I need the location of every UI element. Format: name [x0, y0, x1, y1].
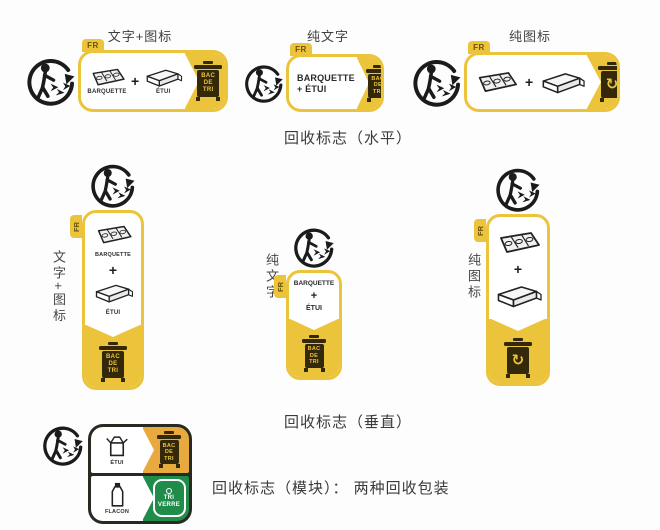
arrow-chevron — [142, 427, 154, 473]
arrow-chevron — [489, 318, 547, 331]
triman-logo-icon — [42, 424, 84, 466]
plus-etui-label: + ÉTUI — [297, 84, 326, 94]
barquette-label: BARQUETTE — [87, 89, 126, 95]
triman-logo-icon — [495, 166, 541, 212]
tray-barquette-icon — [87, 67, 127, 88]
barquette-label: BARQUETTE — [297, 73, 355, 83]
open-box-etui-icon — [105, 434, 129, 459]
bottle-flacon-icon — [108, 482, 127, 508]
label-module: ÉTUI BAC DE TRI — [42, 424, 192, 524]
caption-horizontal: 回收标志（水平） — [230, 127, 466, 148]
bac-de-tri-bin-icon: BAC DE TRI — [157, 431, 181, 468]
bac-de-tri-bin-icon: BAC DE TRI — [194, 61, 222, 101]
label-vertical-text-only: FR BARQUETTE + ÉTUI BAC DE TRI — [286, 226, 342, 380]
fr-tag: FR — [70, 215, 82, 238]
bac-de-tri-bin-icon: BAC DE TRI — [99, 342, 127, 382]
bac-de-tri-bin-icon: BAC DE TRI — [302, 335, 326, 372]
label-vertical-text-icon: FR BARQUETTE + ÉTUI BAC DE — [82, 162, 144, 390]
arrow-chevron — [84, 324, 142, 337]
etui-label: ÉTUI — [156, 89, 170, 95]
recycling-labels-diagram: 文字+图标 纯文字 纯图标 FR BARQUETTE + ÉTUI — [0, 0, 660, 530]
caption-vertical: 回收标志（垂直） — [230, 411, 466, 432]
fr-tag: FR — [274, 275, 286, 298]
label-horizontal-text-only: FR BARQUETTE + ÉTUI BAC DE TRI — [244, 54, 384, 112]
header-text-only: 纯文字 — [270, 26, 386, 45]
label-vertical-icon-only: FR + ↻ — [486, 166, 550, 386]
side-label-icon-only: 纯图标 — [464, 253, 483, 301]
recycle-bin-icon: ↻ — [504, 338, 532, 378]
plus-sign: + — [514, 262, 522, 276]
tray-barquette-icon — [494, 230, 542, 256]
triman-logo-icon — [90, 162, 136, 208]
side-label-text-icon: 文字+图标 — [49, 250, 68, 325]
bac-de-tri-bin-icon: BAC DE TRI — [366, 65, 384, 102]
plus-sign: + — [525, 75, 533, 89]
triman-logo-icon — [244, 63, 284, 103]
triman-logo-icon — [26, 56, 76, 106]
etui-label: ÉTUI — [306, 305, 322, 312]
triman-logo-icon — [412, 57, 462, 107]
barquette-label: BARQUETTE — [294, 280, 334, 287]
glass-jar-dot-icon — [166, 488, 172, 494]
arrow-chevron — [288, 318, 340, 330]
tri-verre-badge: TRI VERRE — [153, 479, 186, 517]
caption-module: 回收标志（模块）： 两种回收包装 — [212, 477, 472, 498]
tray-barquette-icon — [92, 224, 134, 246]
fr-tag: FR — [474, 219, 486, 242]
etui-label: ÉTUI — [110, 460, 123, 466]
barquette-label: BARQUETTE — [95, 252, 131, 258]
box-etui-icon — [92, 282, 134, 304]
plus-sign: + — [131, 74, 139, 88]
recycle-bin-icon: ↻ — [598, 62, 620, 102]
box-etui-icon — [494, 283, 542, 309]
plus-sign: + — [311, 291, 317, 302]
box-etui-icon — [143, 67, 183, 88]
triman-logo-icon — [293, 226, 335, 268]
label-horizontal-icon-only: FR + ↻ — [412, 52, 620, 112]
flacon-label: FLACON — [105, 509, 129, 515]
plus-sign: + — [109, 263, 117, 277]
recycle-arrow-icon: ↻ — [512, 353, 525, 369]
recycle-arrow-icon: ↻ — [606, 77, 619, 93]
label-horizontal-text-icon: FR BARQUETTE + ÉTUI — [26, 50, 228, 112]
etui-label: ÉTUI — [106, 310, 120, 316]
box-etui-icon — [539, 70, 585, 95]
tray-barquette-icon — [473, 70, 519, 95]
